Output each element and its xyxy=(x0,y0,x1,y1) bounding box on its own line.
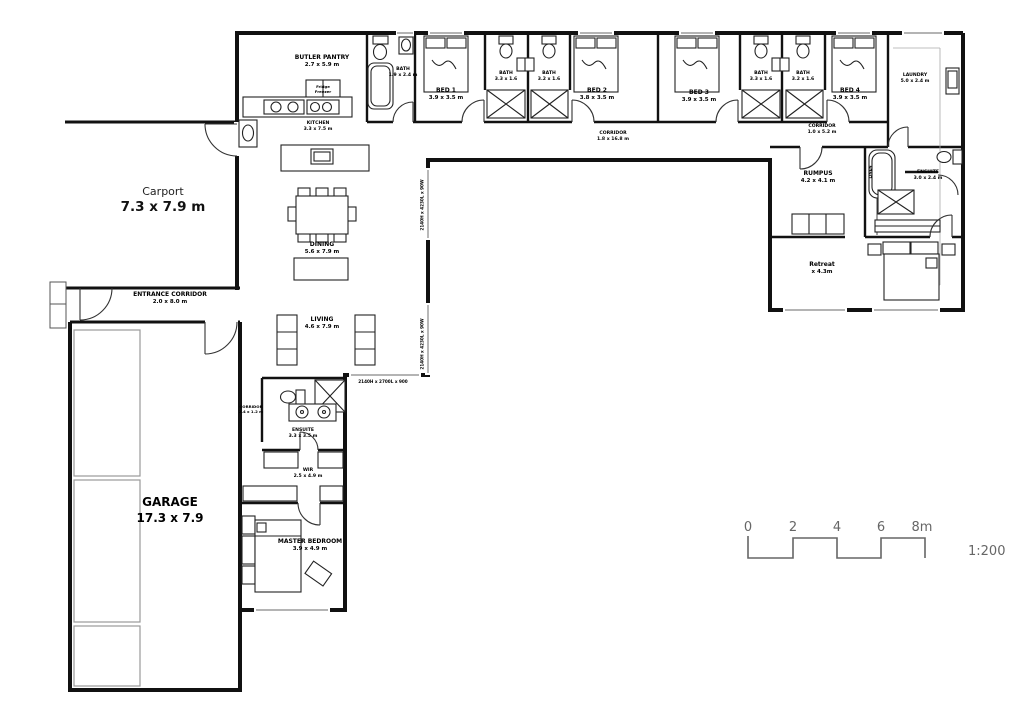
scale-tick-6: 6 xyxy=(877,520,885,535)
room-label-wir: WIR 2.5 x 4.9 m xyxy=(294,468,323,480)
retreat-bed-icon xyxy=(868,242,955,300)
room-label-bath2: BATH 3.2 x 1.6 xyxy=(538,71,560,83)
scale-tick-4: 4 xyxy=(833,520,841,535)
room-label-bed1: BED 1 3.9 x 3.5 m xyxy=(429,87,464,102)
bed1-icon xyxy=(424,36,468,92)
room-label-bath3: BATH 3.3 x 1.6 xyxy=(750,71,772,83)
room-label-carport: Carport 7.3 x 7.9 m xyxy=(121,185,206,217)
buffet-icon xyxy=(294,258,348,280)
room-label-linen: LINEN xyxy=(867,165,872,178)
scale-tick-0: 0 xyxy=(744,520,752,535)
room-label-dining: DINING 5.6 x 7.9 m xyxy=(305,241,340,256)
toilet-icon xyxy=(373,36,388,44)
room-label-bed3: BED 3 3.9 x 3.5 m xyxy=(682,89,717,104)
floor-plan-drawing xyxy=(0,0,1024,703)
room-label-garage: GARAGE 17.3 x 7.9 xyxy=(137,495,204,526)
room-label-butler-pantry: BUTLER PANTRY 2.7 x 5.9 m xyxy=(295,54,349,69)
room-label-bath-top: BATH 1.9 x 2.4 m xyxy=(389,67,418,79)
room-label-bed2: BED 2 3.8 x 3.5 m xyxy=(580,87,615,102)
room-label-retreat: Retreat x 4.3m xyxy=(809,261,835,276)
porch-steps xyxy=(50,282,66,328)
floor-plan: BUTLER PANTRY 2.7 x 5.9 m Fridge Freezer… xyxy=(0,0,1024,703)
sofa-icon xyxy=(792,214,844,234)
toilet-icon xyxy=(937,152,951,163)
window-spec-living-bottom: 2140H x 4230L x 90W xyxy=(420,318,425,369)
room-label-master-bedroom: MASTER BEDROOM 3.9 x 4.9 m xyxy=(278,538,342,553)
room-label-bed4: BED 4 3.9 x 3.5 m xyxy=(833,87,868,102)
dining-table-icon xyxy=(288,188,356,242)
bed2-icon xyxy=(574,36,618,92)
room-label-corridor-right: CORRIDOR 1.0 x 5.2 m xyxy=(808,124,837,136)
garage-door-panels xyxy=(74,330,140,686)
window-spec-living-top: 2140H x 4230L x 90W xyxy=(420,179,425,230)
toilet-icon xyxy=(296,390,305,405)
wardrobe-icons xyxy=(487,90,823,118)
room-label-entrance-corridor: ENTRANCE CORRIDOR 2.0 x 8.0 m xyxy=(133,291,207,306)
chair-icon xyxy=(305,561,332,586)
room-label-ensuite-master: ENSUITE 3.3 x 3.5 m xyxy=(289,428,318,440)
room-label-ensuite-right: ENSUITE 3.0 x 2.4 m xyxy=(914,170,943,182)
room-label-laundry: LAUNDRY 5.0 x 2.4 m xyxy=(901,73,930,85)
master-bed-icon xyxy=(242,516,301,592)
window-spec-master: 2140H x 2700L x 900 xyxy=(358,379,407,384)
room-label-bath4: BATH 3.2 x 1.6 xyxy=(792,71,814,83)
scale-tick-8m: 8m xyxy=(912,520,933,535)
bed3-icon xyxy=(675,36,719,92)
room-name: BUTLER PANTRY xyxy=(295,54,349,62)
bath-fixtures xyxy=(499,36,810,71)
room-label-corridor-main: CORRIDOR 1.8 x 16.8 m xyxy=(597,131,629,143)
scale-ratio: 1:200 xyxy=(968,544,1005,559)
scale-bar xyxy=(748,536,925,558)
room-label-rumpus: RUMPUS 4.2 x 4.1 m xyxy=(801,170,836,185)
room-label-corridor-master: CORRIDOR 2.4 x 1.2 m xyxy=(239,404,263,414)
room-label-kitchen: KITCHEN 3.3 x 7.5 m xyxy=(304,121,333,133)
room-label-living: LIVING 4.6 x 7.9 m xyxy=(305,316,340,331)
room-dims: 2.7 x 5.9 m xyxy=(295,62,349,69)
scale-tick-2: 2 xyxy=(789,520,797,535)
room-label-bath1: BATH 3.3 x 1.6 xyxy=(495,71,517,83)
ensuite-right-fixtures xyxy=(869,150,962,232)
fridge-label: Fridge Freezer xyxy=(315,84,331,94)
bed4-icon xyxy=(832,36,876,92)
